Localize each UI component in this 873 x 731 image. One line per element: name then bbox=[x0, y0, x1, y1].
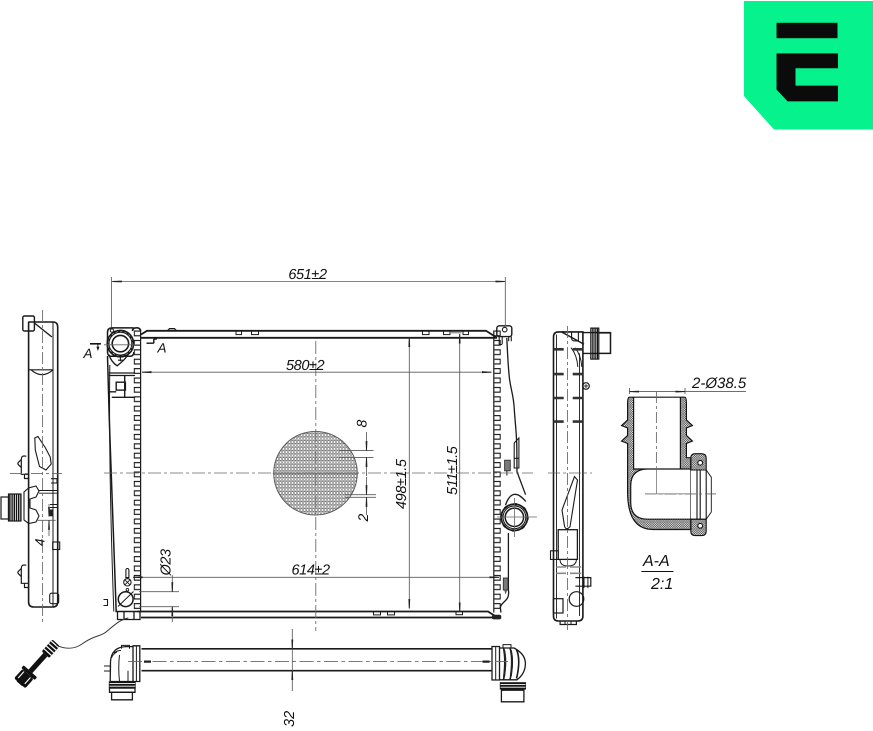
svg-text:A: A bbox=[83, 346, 93, 361]
svg-text:614±2: 614±2 bbox=[292, 563, 331, 579]
svg-text:8: 8 bbox=[354, 420, 370, 428]
svg-text:4: 4 bbox=[33, 538, 48, 546]
svg-text:651±2: 651±2 bbox=[288, 267, 327, 283]
svg-text:580±2: 580±2 bbox=[286, 358, 325, 374]
svg-text:A-A: A-A bbox=[642, 553, 670, 570]
svg-text:511±1.5: 511±1.5 bbox=[445, 445, 461, 495]
svg-text:2: 2 bbox=[355, 514, 371, 523]
svg-text:A: A bbox=[157, 341, 167, 356]
svg-text:32: 32 bbox=[282, 711, 298, 727]
svg-text:498±1.5: 498±1.5 bbox=[394, 458, 410, 509]
svg-text:Ø23: Ø23 bbox=[159, 549, 175, 577]
svg-text:2:1: 2:1 bbox=[650, 576, 673, 593]
svg-text:2-Ø38.5: 2-Ø38.5 bbox=[691, 375, 747, 392]
